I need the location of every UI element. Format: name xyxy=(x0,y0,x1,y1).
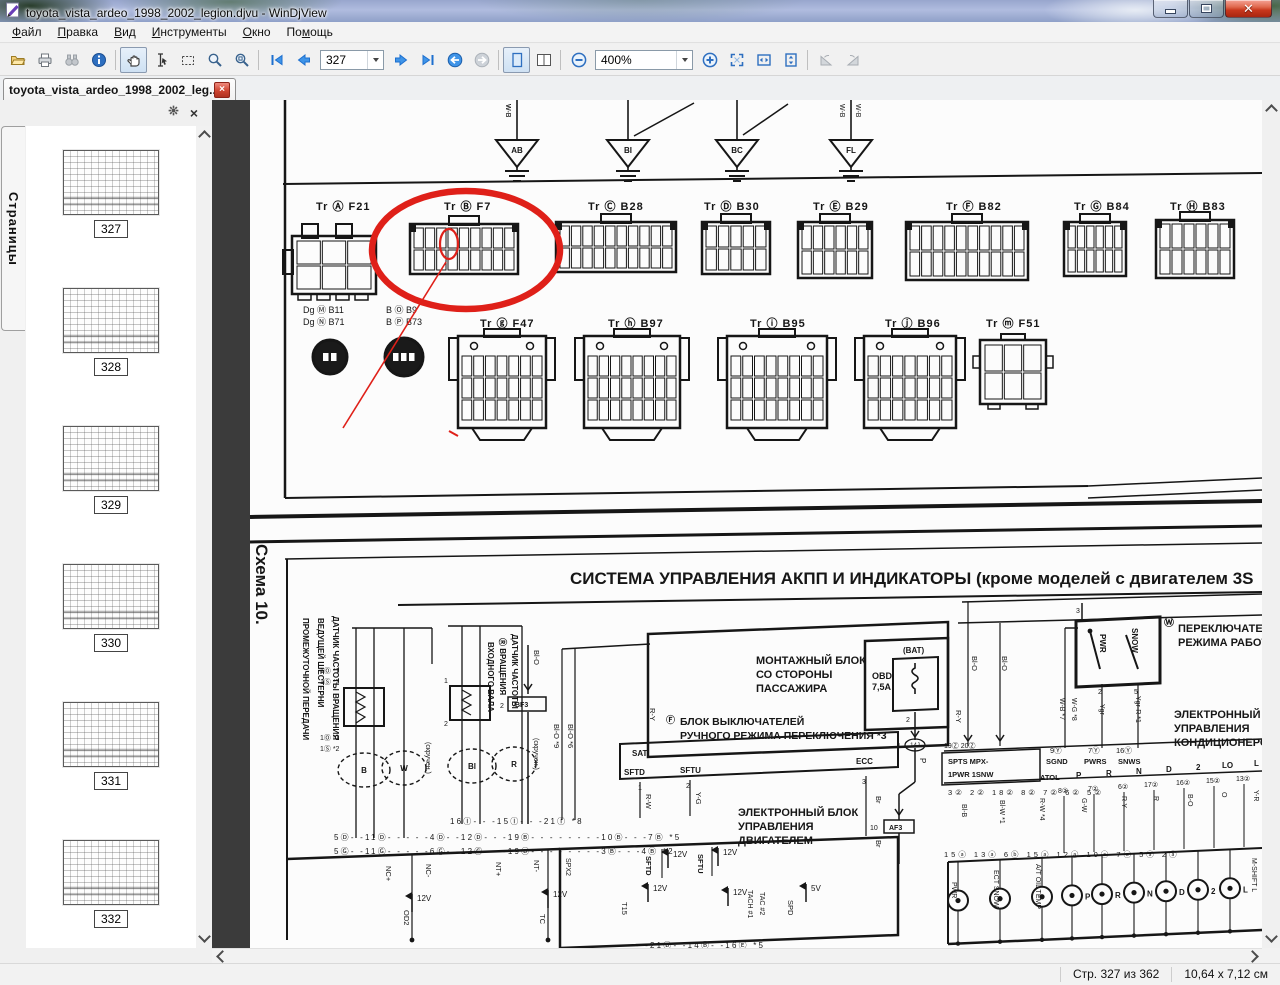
svg-text:6②: 6② xyxy=(1118,784,1128,791)
thumbnail-image[interactable] xyxy=(63,564,159,629)
single-icon xyxy=(509,52,525,68)
svg-text:L: L xyxy=(1254,759,1259,768)
svg-text:B Ⓞ B9: B Ⓞ B9 xyxy=(386,305,417,315)
svg-text:SNWS: SNWS xyxy=(1118,757,1141,766)
toolbar-zoomout-button[interactable] xyxy=(565,47,592,73)
svg-text:12V: 12V xyxy=(653,884,668,893)
svg-text:TAC #2: TAC #2 xyxy=(758,892,765,915)
svg-text:LO: LO xyxy=(1222,761,1233,770)
svg-text:14J: 14J xyxy=(910,743,920,749)
svg-text:TACH #1: TACH #1 xyxy=(746,890,753,918)
svg-text:PWRS: PWRS xyxy=(1084,757,1107,766)
svg-text:SAT: SAT xyxy=(632,749,648,758)
toolbar-navfirst-button[interactable] xyxy=(263,47,290,73)
navlast-icon xyxy=(420,52,436,68)
toolbar-facing-button[interactable] xyxy=(530,47,557,73)
svg-text:Dg Ⓝ B71: Dg Ⓝ B71 xyxy=(303,317,345,327)
svg-text:BC: BC xyxy=(731,146,743,155)
chevron-right-icon xyxy=(1246,950,1259,963)
scrollbar-corner xyxy=(1262,948,1280,963)
svg-text:МОНТАЖНЫЙ БЛОК: МОНТАЖНЫЙ БЛОК xyxy=(756,654,866,667)
svg-text:Tr Ⓑ F7: Tr Ⓑ F7 xyxy=(444,199,491,213)
svg-text:(скручен.): (скручен.) xyxy=(424,742,431,774)
svg-text:Tr Ⓓ B30: Tr Ⓓ B30 xyxy=(704,199,760,213)
svg-text:Tr Ⓐ F21: Tr Ⓐ F21 xyxy=(316,199,370,213)
toolbar-open-button[interactable] xyxy=(4,47,31,73)
svg-text:15②: 15② xyxy=(1206,778,1220,785)
svg-text:2: 2 xyxy=(1211,887,1216,896)
svg-text:ВЕДУЩЕЙ ШЕСТЕРНИ: ВЕДУЩЕЙ ШЕСТЕРНИ xyxy=(316,618,325,708)
fitheight-icon xyxy=(783,52,799,68)
menu-bar: ФайлПравкаВидИнструментыОкноПомощь xyxy=(0,22,1280,43)
svg-text:Ygr-R *1: Ygr-R *1 xyxy=(1134,696,1141,723)
toolbar-separator xyxy=(495,49,503,71)
navfirst-icon xyxy=(269,52,285,68)
toolbar-find-button[interactable] xyxy=(58,47,85,73)
status-page-info: Стр. 327 из 362 xyxy=(1060,967,1171,982)
svg-text:2: 2 xyxy=(1098,689,1102,696)
sidebar-strip: Страницы xyxy=(0,100,26,948)
info-icon xyxy=(91,52,107,68)
svg-text:Tr Ⓔ B29: Tr Ⓔ B29 xyxy=(813,199,869,213)
menu-item-правка[interactable]: Правка xyxy=(50,23,107,41)
close-button[interactable]: ✕ xyxy=(1225,0,1272,18)
fitwidth-icon xyxy=(756,52,772,68)
toolbar-fitwidth-button[interactable] xyxy=(750,47,777,73)
svg-text:D: D xyxy=(1179,888,1185,897)
toolbar-zoomin-button[interactable] xyxy=(696,47,723,73)
menu-item-окно[interactable]: Окно xyxy=(235,23,279,41)
svg-text:16Ⓨ: 16Ⓨ xyxy=(1116,746,1132,755)
svg-text:ECT SNOW: ECT SNOW xyxy=(992,870,999,908)
svg-text:КОНДИЦИОНЕРОМ: КОНДИЦИОНЕРОМ xyxy=(1174,737,1262,749)
svg-text:P: P xyxy=(918,758,927,763)
svg-text:Tr Ⓕ B82: Tr Ⓕ B82 xyxy=(946,199,1002,213)
document-tab[interactable]: toyota_vista_ardeo_1998_2002_leg... × xyxy=(3,78,236,100)
chevron-down-icon xyxy=(198,930,211,943)
svg-text:РУЧНОГО РЕЖИМА ПЕРЕКЛЮЧЕНИЯ *3: РУЧНОГО РЕЖИМА ПЕРЕКЛЮЧЕНИЯ *3 xyxy=(680,730,887,742)
thumbnail-image[interactable] xyxy=(63,840,159,905)
svg-text:Схема 10.: Схема 10. xyxy=(252,544,271,625)
print-icon xyxy=(37,52,53,68)
svg-text:СО СТОРОНЫ: СО СТОРОНЫ xyxy=(756,669,833,681)
svg-text:AB: AB xyxy=(511,146,523,155)
svg-text:5: 5 xyxy=(1134,689,1138,696)
scroll-left-arrow[interactable] xyxy=(214,948,230,964)
svg-text:9Ⓨ: 9Ⓨ xyxy=(1050,746,1062,755)
svg-text:2: 2 xyxy=(686,783,690,790)
svg-text:NC+: NC+ xyxy=(384,866,393,882)
svg-text:ВХОДНОГО ВАЛА: ВХОДНОГО ВАЛА xyxy=(486,642,495,712)
svg-text:ДВИГАТЕЛЕМ: ДВИГАТЕЛЕМ xyxy=(738,835,813,847)
svg-text:10: 10 xyxy=(870,825,878,832)
minimize-icon xyxy=(1165,9,1176,14)
toolbar-print-button[interactable] xyxy=(31,47,58,73)
find-icon xyxy=(64,52,80,68)
svg-text:Ⓦ: Ⓦ xyxy=(1164,616,1174,629)
svg-text:7Ⓨ: 7Ⓨ xyxy=(1088,746,1100,755)
combo-dropdown-arrow[interactable] xyxy=(676,51,692,69)
thumbnail-page-number: 328 xyxy=(94,358,128,376)
svg-text:G-W: G-W xyxy=(1080,798,1087,813)
svg-text:3② 2② 18② 8② 7② 6② 5②: 3② 2② 18② 8② 7② 6② 5② xyxy=(948,788,1104,797)
toolbar-fwd-button[interactable] xyxy=(468,47,495,73)
svg-text:A/T OIL TEMP: A/T OIL TEMP xyxy=(1034,864,1041,909)
svg-text:R-W *4: R-W *4 xyxy=(1038,798,1045,821)
sidebar-tab-label: Страницы xyxy=(6,192,21,266)
combo-dropdown-arrow[interactable] xyxy=(367,51,383,69)
svg-text:W-B: W-B xyxy=(504,104,511,118)
svg-text:Ⓡ ВРАЩЕНИЯ: Ⓡ ВРАЩЕНИЯ xyxy=(498,638,508,695)
svg-text:SNOW: SNOW xyxy=(1130,628,1139,653)
svg-text:- - - - -21Ⓑ- -14Ⓑ- -16Ⓔ *5: - - - - -21Ⓑ- -14Ⓑ- -16Ⓔ *5 xyxy=(608,941,765,948)
app-icon xyxy=(5,2,21,23)
svg-text:ПАССАЖИРА: ПАССАЖИРА xyxy=(756,683,827,695)
svg-text:Y-R: Y-R xyxy=(1252,790,1259,801)
svg-text:12V: 12V xyxy=(553,890,568,899)
svg-text:N: N xyxy=(1136,767,1142,776)
title-bar: toyota_vista_ardeo_1998_2002_legion.djvu… xyxy=(0,0,1280,22)
svg-text:13②: 13② xyxy=(1236,776,1250,783)
zoomtool-icon xyxy=(207,52,223,68)
svg-text:B: B xyxy=(361,766,367,775)
svg-text:5V: 5V xyxy=(811,884,821,893)
svg-text:БЛОК ВЫКЛЮЧАТЕЛЕЙ: БЛОК ВЫКЛЮЧАТЕЛЕЙ xyxy=(680,715,804,728)
svg-text:Tr ⓙ B96: Tr ⓙ B96 xyxy=(885,316,941,330)
zoom-level-combo[interactable]: 400% xyxy=(595,50,693,70)
facing-icon xyxy=(536,52,552,68)
page-number-combo[interactable]: 327 xyxy=(320,50,384,70)
svg-text:Tr ⓖ F47: Tr ⓖ F47 xyxy=(480,316,534,330)
horizontal-scrollbar[interactable] xyxy=(212,948,1262,964)
thumbnail-page-number: 332 xyxy=(94,910,128,928)
svg-text:FL: FL xyxy=(846,146,856,155)
svg-text:12V: 12V xyxy=(673,850,688,859)
toolbar: 327400% xyxy=(0,44,1280,76)
svg-text:Bl: Bl xyxy=(468,762,476,771)
svg-text:1: 1 xyxy=(444,678,448,685)
sidebar-tab-pages[interactable]: Страницы xyxy=(1,126,25,331)
page-thumbnail-327[interactable]: 327 xyxy=(26,150,196,238)
svg-text:SFTD: SFTD xyxy=(644,856,653,876)
svg-text:16Ⓘ- - -15Ⓘ- - -21Ⓘ *8: 16Ⓘ- - -15Ⓘ- - -21Ⓘ *8 xyxy=(450,817,584,826)
svg-text:ПРОМЕЖУТОЧНОЙ ПЕРЕДАЧИ: ПРОМЕЖУТОЧНОЙ ПЕРЕДАЧИ xyxy=(301,618,310,740)
svg-text:M-SHIFT L: M-SHIFT L xyxy=(1250,858,1257,892)
panel-close-icon[interactable]: × xyxy=(190,106,198,120)
svg-text:PWR: PWR xyxy=(950,882,957,898)
chevron-down-icon xyxy=(1265,930,1278,943)
thumbnail-page-number: 329 xyxy=(94,496,128,514)
navnext-icon xyxy=(393,52,409,68)
svg-text:Bl-O: Bl-O xyxy=(532,650,541,665)
thumbnail-panel: 327328329330331332 xyxy=(26,126,196,948)
svg-text:(BAT): (BAT) xyxy=(903,646,925,655)
toolbar-textsel-button[interactable] xyxy=(147,47,174,73)
toolbar-separator xyxy=(255,49,263,71)
svg-text:NT+: NT+ xyxy=(494,862,503,877)
rectsel-icon xyxy=(180,52,196,68)
back-icon xyxy=(447,52,463,68)
page-thumbnail-328[interactable]: 328 xyxy=(26,288,196,376)
svg-text:SFTU: SFTU xyxy=(680,766,701,775)
svg-text:15ⓐ 13ⓐ 6ⓑ 15ⓐ 12ⓐ 10ⓐ 7ⓐ: 15ⓐ 13ⓐ 6ⓑ 15ⓐ 12ⓐ 10ⓐ 7ⓐ 5ⓐ 2ⓐ xyxy=(944,850,1180,859)
toolbar-info-button[interactable] xyxy=(85,47,112,73)
svg-text:Tr ⓘ B95: Tr ⓘ B95 xyxy=(750,316,806,330)
svg-text:Y-G: Y-G xyxy=(694,792,703,805)
fitpage-icon xyxy=(729,52,745,68)
svg-text:SGND: SGND xyxy=(1046,757,1068,766)
navprev-icon xyxy=(296,52,312,68)
svg-text:W-B: W-B xyxy=(854,104,861,118)
rotr-icon xyxy=(845,52,861,68)
svg-text:W-B: W-B xyxy=(838,104,845,118)
svg-text:D: D xyxy=(1166,765,1172,774)
chevron-left-icon xyxy=(216,950,229,963)
svg-text:ЭЛЕКТРОННЫЙ БЛОК: ЭЛЕКТРОННЫЙ БЛОК xyxy=(738,806,858,819)
svg-text:17②: 17② xyxy=(1144,782,1158,789)
svg-text:(скручен.): (скручен.) xyxy=(532,738,539,770)
svg-text:OD2: OD2 xyxy=(402,910,411,925)
svg-text:R-Y: R-Y xyxy=(1120,796,1127,808)
toolbar-navlast-button[interactable] xyxy=(414,47,441,73)
toolbar-single-button[interactable] xyxy=(503,47,530,73)
svg-text:P: P xyxy=(1085,892,1091,901)
svg-text:T15: T15 xyxy=(620,902,629,915)
thumbnail-page-number: 331 xyxy=(94,772,128,790)
svg-text:Bl-O: Bl-O xyxy=(970,656,979,671)
minimize-button[interactable] xyxy=(1153,0,1188,18)
panel-scroll-up-arrow[interactable] xyxy=(196,128,212,144)
svg-text:NT-: NT- xyxy=(532,860,541,873)
thumbnail-page-number: 330 xyxy=(94,634,128,652)
svg-text:R-W: R-W xyxy=(644,794,653,810)
svg-text:5Ⓖ- -11Ⓖ- - - - -6Ⓖ- -12Ⓖ- - -: 5Ⓖ- -11Ⓖ- - - - -6Ⓖ- -12Ⓖ- - -19Ⓑ- - - -… xyxy=(334,847,675,856)
svg-text:R: R xyxy=(511,760,517,769)
thumbnail-image[interactable] xyxy=(63,426,159,491)
svg-text:Tr ⓜ F51: Tr ⓜ F51 xyxy=(986,316,1040,330)
wiring-diagram: BWBlR12V12V12V12V12V12V5VPRND2LABW-BBIBC… xyxy=(212,100,1262,948)
textsel-icon xyxy=(153,52,169,68)
svg-text:1: 1 xyxy=(638,785,642,792)
maximize-button[interactable] xyxy=(1189,0,1224,18)
svg-text:СИСТЕМА УПРАВЛЕНИЯ АКПП И ИНДИ: СИСТЕМА УПРАВЛЕНИЯ АКПП И ИНДИКАТОРЫ (кр… xyxy=(570,569,1254,588)
svg-text:Bl-B: Bl-B xyxy=(960,804,967,818)
svg-text:ДАТЧИК ЧАСТОТЫ ВРАЩЕНИЯ: ДАТЧИК ЧАСТОТЫ ВРАЩЕНИЯ xyxy=(331,616,340,740)
svg-text:SPTS MPX-: SPTS MPX- xyxy=(948,757,989,766)
toolbar-fitheight-button[interactable] xyxy=(777,47,804,73)
svg-text:N: N xyxy=(1147,890,1153,899)
svg-text:Bl-O *9: Bl-O *9 xyxy=(552,724,561,748)
toolbar-separator xyxy=(804,49,812,71)
page-thumbnail-332[interactable]: 332 xyxy=(26,840,196,928)
chevron-up-icon xyxy=(198,130,211,143)
svg-text:ДАТЧИК ЧАСТОТЫ: ДАТЧИК ЧАСТОТЫ xyxy=(510,634,519,709)
page-number-value: 327 xyxy=(326,53,367,67)
svg-text:Bl-W *1: Bl-W *1 xyxy=(998,800,1005,824)
thumbnail-panel-header: × xyxy=(26,100,212,126)
svg-text:Tr Ⓒ B28: Tr Ⓒ B28 xyxy=(588,199,644,213)
svg-text:ЭЛЕКТРОННЫЙ БЛОК: ЭЛЕКТРОННЫЙ БЛОК xyxy=(1174,708,1262,721)
svg-text:SFTU: SFTU xyxy=(696,854,705,874)
svg-text:1PWR 1SNW: 1PWR 1SNW xyxy=(948,770,994,779)
menu-item-помощь[interactable]: Помощь xyxy=(279,23,341,41)
svg-text:Tr Ⓖ B84: Tr Ⓖ B84 xyxy=(1074,199,1130,213)
toolbar-zoomwin-button[interactable] xyxy=(228,47,255,73)
chevron-up-icon xyxy=(1265,104,1278,117)
svg-text:1Ⓢ *2: 1Ⓢ *2 xyxy=(320,745,340,753)
svg-text:7,5A: 7,5A xyxy=(872,682,892,692)
toolbar-rectsel-button[interactable] xyxy=(174,47,201,73)
scroll-down-arrow[interactable] xyxy=(1263,928,1279,944)
svg-text:3: 3 xyxy=(862,779,866,786)
svg-text:NC-: NC- xyxy=(424,864,433,878)
svg-text:R-Y: R-Y xyxy=(954,710,963,723)
svg-text:SPD: SPD xyxy=(786,900,795,916)
zoomin-icon xyxy=(702,52,718,68)
svg-text:R: R xyxy=(1115,891,1121,900)
svg-text:2: 2 xyxy=(1196,763,1201,772)
gear-icon[interactable] xyxy=(167,104,180,122)
zoom-level-value: 400% xyxy=(601,53,676,67)
svg-text:AF3: AF3 xyxy=(889,825,902,832)
svg-text:РЕЖИМА РАБОТЫ: РЕЖИМА РАБОТЫ xyxy=(1178,637,1262,649)
document-tab-label: toyota_vista_ardeo_1998_2002_leg... xyxy=(9,83,214,97)
svg-text:OBD: OBD xyxy=(872,671,893,681)
window-title: toyota_vista_ardeo_1998_2002_legion.djvu… xyxy=(26,6,327,20)
toolbar-separator xyxy=(557,49,565,71)
thumbnail-page-number: 327 xyxy=(94,220,128,238)
svg-text:Tr Ⓗ B83: Tr Ⓗ B83 xyxy=(1170,199,1226,213)
vertical-scrollbar[interactable] xyxy=(1262,100,1280,948)
svg-text:12V: 12V xyxy=(417,894,432,903)
fwd-icon xyxy=(474,52,490,68)
svg-text:Br: Br xyxy=(874,840,883,848)
svg-text:B-O: B-O xyxy=(1186,794,1193,807)
zoomout-icon xyxy=(571,52,587,68)
maximize-icon xyxy=(1201,4,1212,13)
svg-text:12V: 12V xyxy=(723,848,738,857)
page-thumbnail-330[interactable]: 330 xyxy=(26,564,196,652)
toolbar-zoomtool-button[interactable] xyxy=(201,47,228,73)
svg-text:PWR: PWR xyxy=(1098,634,1107,653)
status-bar: Стр. 327 из 362 10,64 x 7,12 см xyxy=(0,963,1280,985)
svg-text:TC: TC xyxy=(538,914,547,925)
toolbar-rotr-button[interactable] xyxy=(839,47,866,73)
tab-close-button[interactable]: × xyxy=(214,82,230,98)
document-view[interactable]: BWBlR12V12V12V12V12V12V5VPRND2LABW-BBIBC… xyxy=(212,100,1262,948)
svg-text:R-Y: R-Y xyxy=(648,708,657,721)
svg-text:3: 3 xyxy=(1076,608,1080,615)
thumbnail-image[interactable] xyxy=(63,288,159,353)
menu-item-файл[interactable]: Файл xyxy=(4,23,50,41)
toolbar-hand-button[interactable] xyxy=(120,47,147,73)
svg-text:2: 2 xyxy=(500,703,504,710)
svg-text:P: P xyxy=(1076,771,1082,780)
svg-text:2: 2 xyxy=(444,721,448,728)
status-page-size: 10,64 x 7,12 см xyxy=(1171,967,1280,982)
svg-text:Bl-O *6: Bl-O *6 xyxy=(566,724,575,748)
svg-text:Br: Br xyxy=(874,796,883,804)
svg-text:Tr ⓗ B97: Tr ⓗ B97 xyxy=(608,316,664,330)
svg-text:O: O xyxy=(1220,792,1227,798)
svg-text:SFTD: SFTD xyxy=(624,768,645,777)
thumbnail-panel-scrollbar[interactable] xyxy=(196,126,212,948)
svg-text:Ygr: Ygr xyxy=(1098,704,1105,716)
panel-scroll-down-arrow[interactable] xyxy=(196,928,212,944)
page-thumbnail-331[interactable]: 331 xyxy=(26,702,196,790)
svg-text:5Ⓓ- -11Ⓓ- - - - -4Ⓓ- -12Ⓓ- - -: 5Ⓓ- -11Ⓓ- - - - -4Ⓓ- -12Ⓓ- - -19Ⓑ- - - -… xyxy=(334,833,681,842)
thumbnail-image[interactable] xyxy=(63,150,159,215)
menu-item-инструменты[interactable]: Инструменты xyxy=(144,23,235,41)
page-thumbnail-329[interactable]: 329 xyxy=(26,426,196,514)
svg-text:W-G *8: W-G *8 xyxy=(1070,698,1077,721)
svg-text:R: R xyxy=(1152,796,1159,801)
toolbar-navprev-button[interactable] xyxy=(290,47,317,73)
close-icon: ✕ xyxy=(1243,2,1254,15)
svg-text:12V: 12V xyxy=(733,888,748,897)
svg-text:BI: BI xyxy=(624,146,632,155)
svg-text:SPX2: SPX2 xyxy=(564,858,571,876)
svg-text:ECC: ECC xyxy=(856,757,873,766)
rotl-icon xyxy=(818,52,834,68)
toolbar-rotl-button[interactable] xyxy=(812,47,839,73)
svg-text:УПРАВЛЕНИЯ: УПРАВЛЕНИЯ xyxy=(738,821,814,833)
zoomwin-icon xyxy=(234,52,250,68)
scroll-up-arrow[interactable] xyxy=(1263,102,1279,118)
svg-text:Ⓕ: Ⓕ xyxy=(666,714,675,725)
svg-text:L: L xyxy=(1243,885,1248,894)
svg-text:16②: 16② xyxy=(1176,780,1190,787)
document-tab-bar: toyota_vista_ardeo_1998_2002_leg... × xyxy=(0,76,1280,101)
hand-icon xyxy=(126,52,142,68)
svg-text:2: 2 xyxy=(906,717,910,724)
toolbar-navnext-button[interactable] xyxy=(387,47,414,73)
svg-text:W: W xyxy=(400,764,408,773)
svg-text:Bl-O: Bl-O xyxy=(1000,656,1009,671)
toolbar-fitpage-button[interactable] xyxy=(723,47,750,73)
scroll-right-arrow[interactable] xyxy=(1244,948,1260,964)
toolbar-separator xyxy=(112,49,120,71)
svg-text:Dg Ⓜ B11: Dg Ⓜ B11 xyxy=(303,305,344,315)
menu-item-вид[interactable]: Вид xyxy=(106,23,144,41)
svg-text:ATOL: ATOL xyxy=(1040,773,1060,782)
svg-text:УПРАВЛЕНИЯ: УПРАВЛЕНИЯ xyxy=(1174,723,1250,735)
thumbnail-image[interactable] xyxy=(63,702,159,767)
open-icon xyxy=(10,52,26,68)
toolbar-back-button[interactable] xyxy=(441,47,468,73)
svg-text:19Ⓩ 20Ⓩ: 19Ⓩ 20Ⓩ xyxy=(944,742,976,750)
svg-text:1: 1 xyxy=(897,743,901,750)
svg-text:R: R xyxy=(1106,769,1112,778)
svg-text:B Ⓟ B73: B Ⓟ B73 xyxy=(386,317,422,327)
svg-text:W-B *7: W-B *7 xyxy=(1058,698,1065,720)
svg-text:ПЕРЕКЛЮЧАТЕЛЬ: ПЕРЕКЛЮЧАТЕЛЬ xyxy=(1178,623,1262,635)
